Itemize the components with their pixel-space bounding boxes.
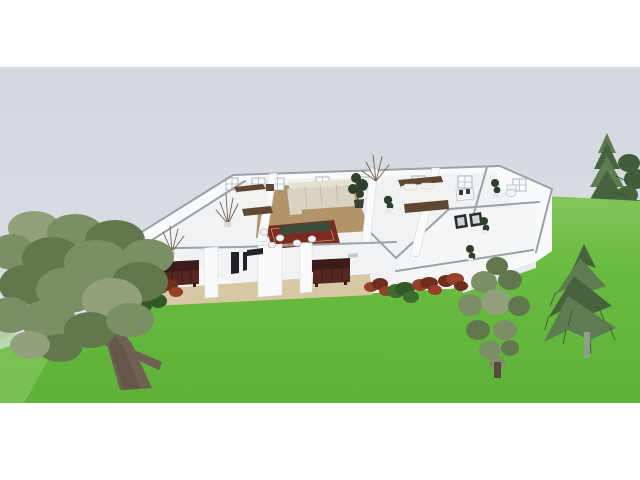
picture-inner: [457, 217, 465, 226]
console-item: [466, 189, 470, 194]
nightstand: [266, 184, 274, 191]
plant-pot: [482, 230, 487, 234]
pillow: [404, 184, 417, 190]
plant-pot: [224, 222, 231, 227]
plant-foliage: [491, 179, 499, 187]
foliage-blob: [466, 320, 490, 340]
foliage-blob: [106, 303, 154, 337]
front-door[interactable]: [231, 252, 239, 274]
plant-pot: [493, 193, 498, 198]
bench-leg: [193, 283, 196, 287]
foliage-blob: [501, 340, 519, 356]
foliage-blob: [458, 294, 482, 316]
shrub-tree-trunk: [494, 362, 501, 378]
plant-pot: [468, 258, 473, 262]
window[interactable]: [458, 176, 472, 188]
bench-leg: [315, 283, 318, 287]
console-item: [459, 190, 463, 195]
picture-inner: [472, 215, 480, 224]
bench-leg: [344, 281, 347, 285]
porch-pillar: [204, 247, 218, 298]
dining-chair[interactable]: [268, 242, 275, 248]
scene-canvas[interactable]: [0, 0, 640, 480]
plant-pot: [386, 208, 392, 213]
plant-foliage: [480, 217, 488, 225]
plant-foliage: [356, 190, 364, 198]
bath-console[interactable]: [456, 188, 474, 201]
dining-chair[interactable]: [293, 240, 301, 246]
foliage-blob: [508, 296, 530, 316]
home-design-3d-viewport[interactable]: [0, 0, 640, 480]
spruce-trunk: [584, 332, 590, 358]
plant-foliage: [494, 187, 501, 194]
plant-foliage: [466, 245, 474, 253]
render-area[interactable]: [0, 67, 640, 403]
porch-pillar: [300, 243, 312, 293]
pillow: [421, 183, 434, 189]
foliage-blob: [10, 331, 50, 359]
foliage-blob: [493, 320, 517, 340]
front-door[interactable]: [243, 252, 247, 271]
bedroom-right-bed[interactable]: [398, 176, 449, 213]
plant-pot: [354, 199, 364, 208]
toilet[interactable]: [506, 189, 516, 196]
dining-chair[interactable]: [260, 229, 268, 235]
porch-bench[interactable]: [312, 258, 350, 287]
foliage-blob: [481, 289, 511, 315]
dining-chair[interactable]: [308, 236, 316, 242]
foliage-blob: [498, 270, 522, 290]
dining-chair[interactable]: [276, 235, 284, 241]
